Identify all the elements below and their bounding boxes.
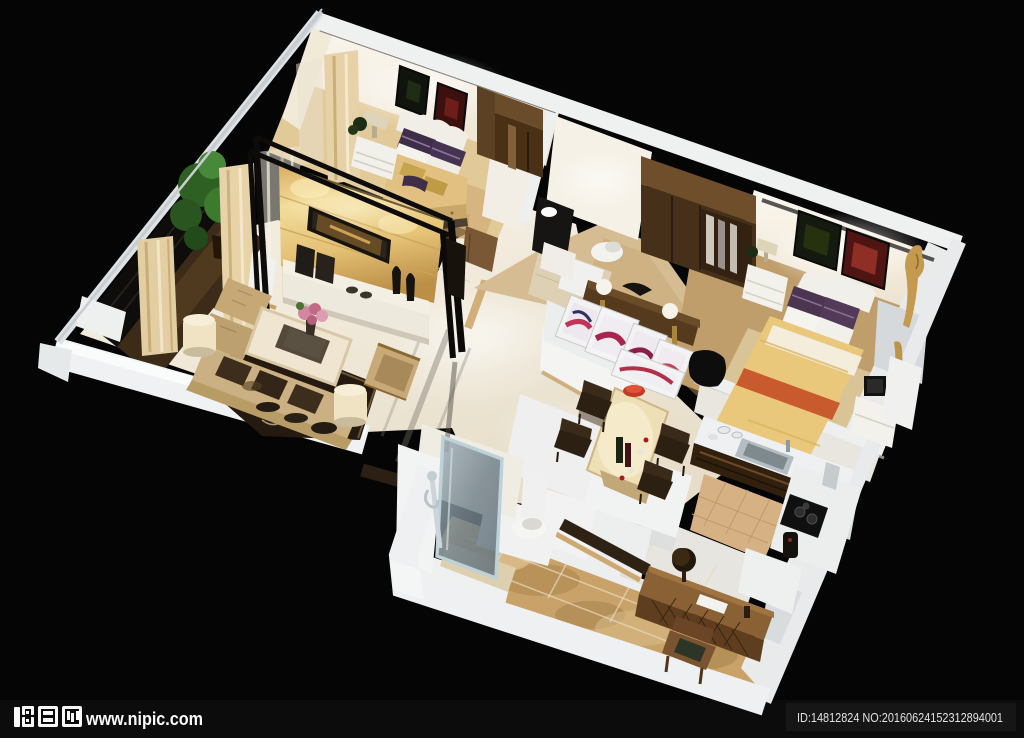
svg-text:www.nipic.com: www.nipic.com: [85, 709, 203, 729]
svg-text:ID:14812824 NO:201606241523128: ID:14812824 NO:20160624152312894001: [797, 710, 1003, 725]
